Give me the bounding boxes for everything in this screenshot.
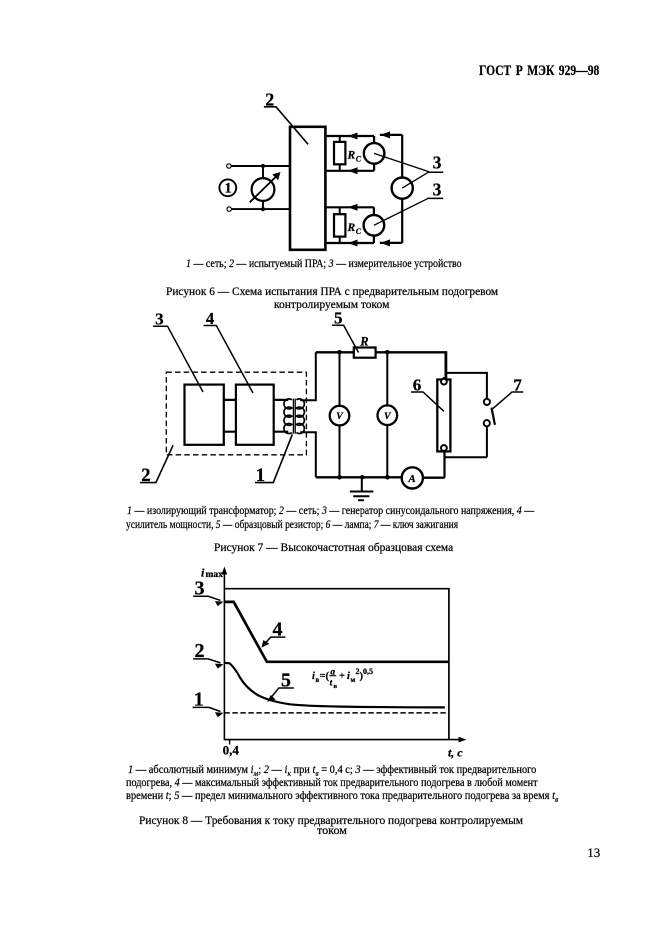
svg-text:=(: =(	[320, 671, 330, 682]
svg-text:0,5: 0,5	[363, 667, 373, 676]
svg-text:7: 7	[513, 375, 522, 394]
svg-text:C: C	[356, 155, 362, 164]
svg-text:6: 6	[413, 375, 422, 394]
svg-text:1: 1	[194, 689, 204, 711]
svg-text:5: 5	[334, 309, 343, 328]
svg-text:4: 4	[273, 619, 283, 641]
svg-text:в: в	[334, 683, 338, 690]
svg-text:max: max	[206, 570, 224, 580]
svg-text:3: 3	[195, 578, 205, 600]
svg-text:3: 3	[155, 310, 164, 329]
svg-text:м: м	[351, 676, 356, 684]
svg-text:R: R	[359, 334, 368, 348]
svg-text:3: 3	[433, 179, 442, 199]
svg-text:3: 3	[433, 153, 442, 173]
svg-text:C: C	[356, 227, 362, 236]
svg-text:5: 5	[281, 669, 291, 691]
svg-text:2: 2	[195, 640, 205, 662]
svg-text:0,4: 0,4	[223, 742, 240, 757]
svg-text:t: t	[330, 679, 333, 689]
svg-text:4: 4	[206, 309, 215, 328]
svg-text:2: 2	[265, 90, 274, 110]
svg-text:1: 1	[224, 181, 231, 197]
svg-text:t, c: t, c	[448, 745, 463, 759]
svg-text:+: +	[339, 671, 345, 682]
svg-text:R: R	[347, 222, 356, 234]
svg-text:A: A	[407, 473, 415, 485]
svg-text:R: R	[347, 150, 356, 162]
svg-text:1: 1	[256, 466, 265, 486]
svg-text:2: 2	[141, 466, 150, 486]
